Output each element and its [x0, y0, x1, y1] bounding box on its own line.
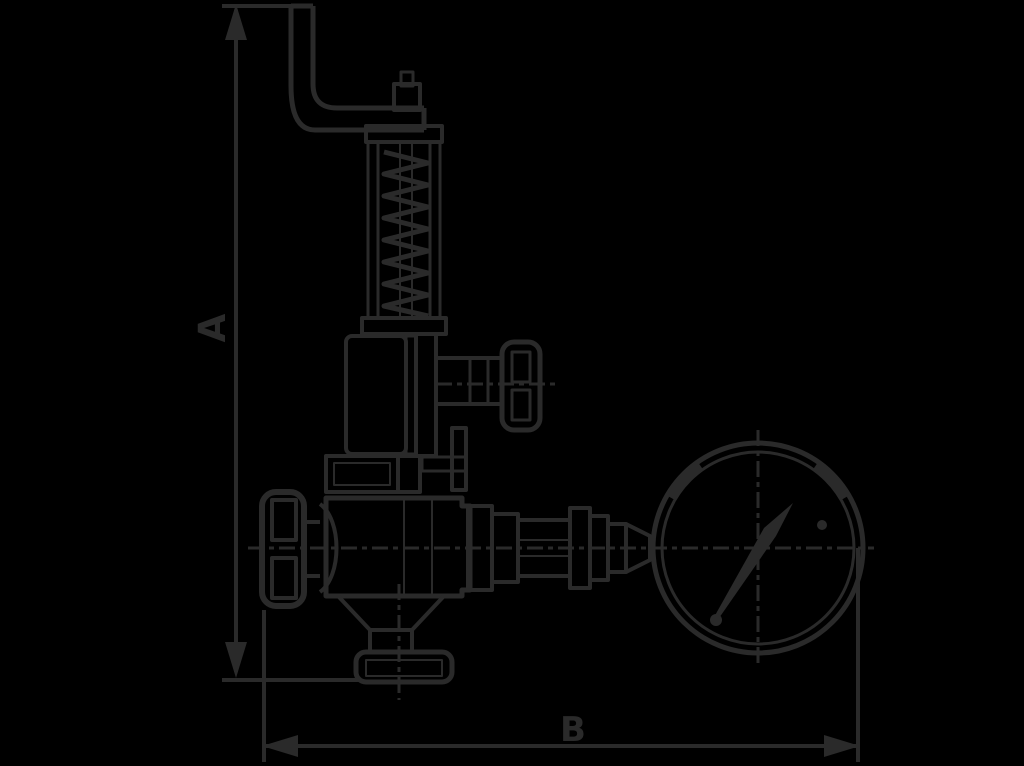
arrow-up-icon	[225, 4, 247, 40]
bonnet	[346, 334, 436, 456]
side-branch	[436, 342, 540, 430]
drawing-canvas: A B	[0, 0, 1024, 766]
gauge-pin-dot	[817, 520, 827, 530]
gauge-needle	[713, 503, 793, 621]
dimension-b: B	[262, 548, 860, 762]
side-handwheel-slot	[512, 390, 530, 420]
adjusting-screw	[394, 72, 420, 110]
arrow-right-icon	[824, 735, 860, 757]
stem-housing	[416, 334, 436, 456]
dimension-a-label: A	[191, 313, 234, 342]
side-handwheel	[502, 342, 540, 430]
tie-rod-left	[368, 142, 378, 318]
cross-fitting-vertical	[452, 428, 466, 490]
spring-housing	[362, 126, 446, 334]
handwheel-slot	[272, 558, 296, 598]
spring-bottom-plate	[362, 318, 446, 334]
tie-rod-right	[430, 142, 440, 318]
gauge-needle-dot	[710, 614, 722, 626]
mid-connector	[398, 456, 420, 492]
spring-coil	[384, 152, 428, 316]
mid-flange	[326, 456, 398, 492]
dimension-a: A	[191, 4, 360, 680]
mid-flange-inner	[334, 463, 390, 485]
valve-technical-drawing: A B	[0, 0, 1024, 766]
arrow-down-icon	[225, 642, 247, 678]
cross-fitting-horizontal	[422, 457, 466, 471]
body-funnel	[338, 596, 444, 630]
bottom-flange-inner	[366, 660, 442, 676]
bottom-flange	[356, 652, 452, 682]
side-handwheel-slot	[512, 352, 530, 382]
bonnet-body	[346, 336, 406, 454]
handwheel-slot	[272, 500, 296, 540]
dimension-b-label: B	[560, 710, 586, 750]
arrow-left-icon	[262, 735, 298, 757]
